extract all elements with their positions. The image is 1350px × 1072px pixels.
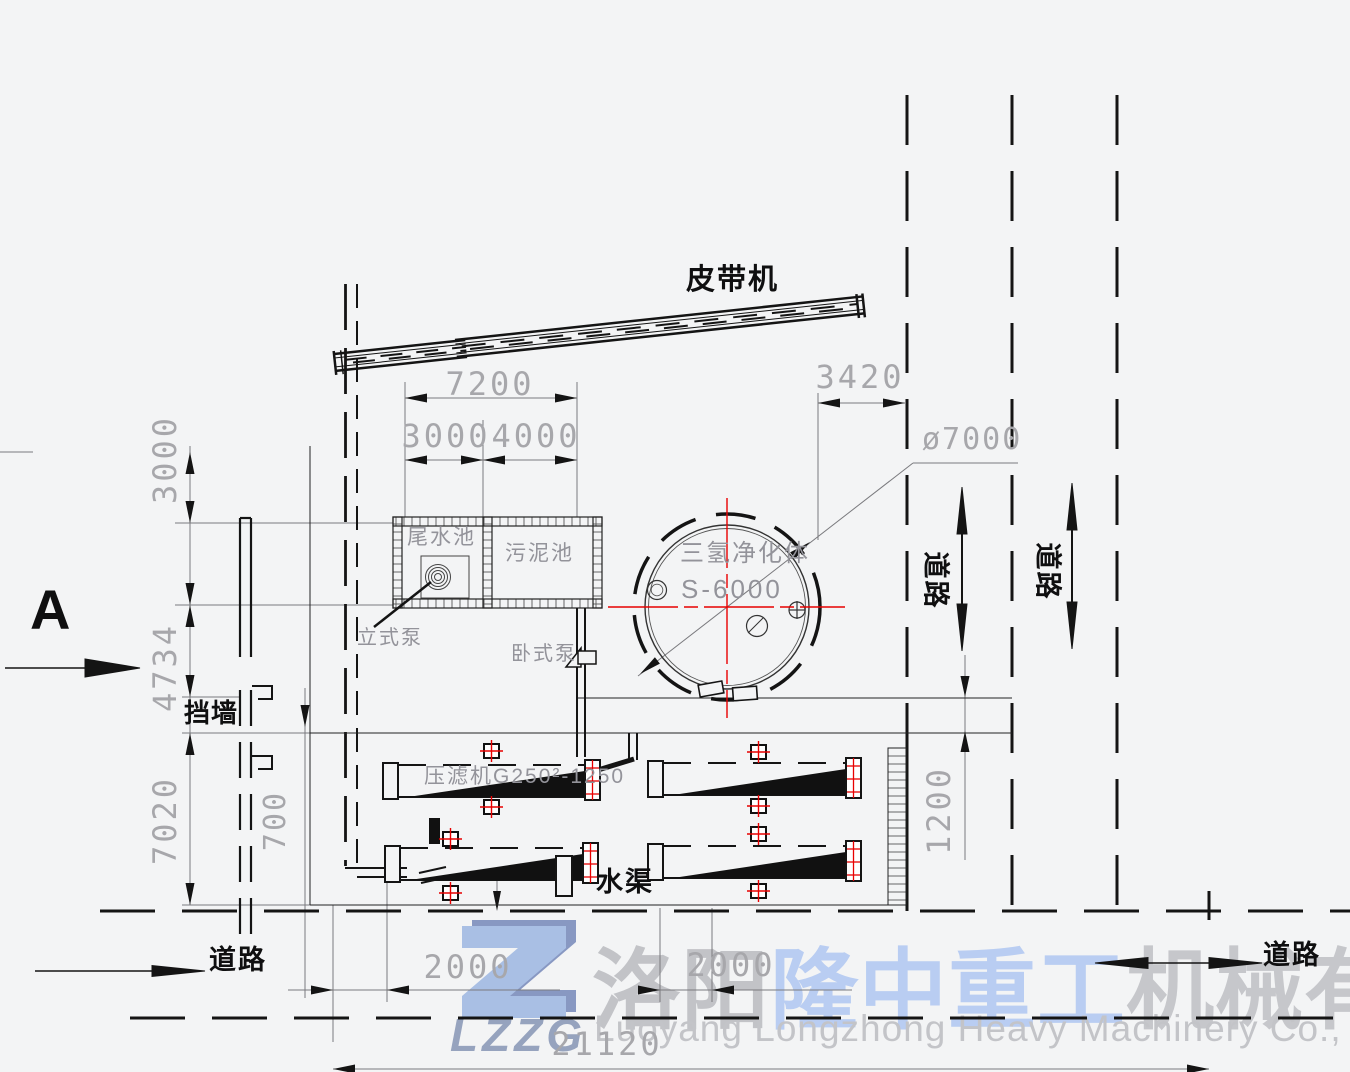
label-purifier-name: 三氢净化体 xyxy=(680,542,810,566)
cad-drawing-page: LZZG 洛阳隆中重工机械有限公司 Luoyang Longzhong Heav… xyxy=(0,0,1350,1072)
dim-2000-mid: 2000 xyxy=(671,949,791,981)
label-horizontal-pump: 卧式泵 xyxy=(511,644,577,664)
label-sludge-pool: 污泥池 xyxy=(505,543,574,564)
dim-3000-left: 3000 xyxy=(149,424,181,504)
dim-7020: 7020 xyxy=(149,785,181,865)
belt-conveyor xyxy=(334,293,865,374)
label-vertical-pump: 立式泵 xyxy=(357,628,423,648)
section-marker-a: A xyxy=(30,582,70,638)
dim-1200: 1200 xyxy=(923,775,955,855)
label-filter-press: 压滤机G250²-1250 xyxy=(424,766,625,787)
label-road-vertical-1: 道路 xyxy=(922,541,949,621)
dim-4000: 4000 xyxy=(476,420,596,452)
label-tail-water-pool: 尾水池 xyxy=(407,527,476,548)
dim-4734: 4734 xyxy=(149,632,181,712)
label-belt-conveyor: 皮带机 xyxy=(686,266,779,295)
dim-tank-diameter: ø7000 xyxy=(922,425,1022,455)
dim-21120: 21120 xyxy=(537,1028,677,1060)
section-a-arrow-icon xyxy=(85,659,140,677)
label-retaining-wall: 挡墙 xyxy=(184,700,238,726)
dim-700: 700 xyxy=(261,785,291,857)
label-purifier-model: S-6000 xyxy=(681,576,783,602)
label-road-bottom-right: 道路 xyxy=(1263,942,1321,969)
dim-3420: 3420 xyxy=(800,361,920,393)
road-direction-arrows xyxy=(5,483,1262,977)
cad-canvas xyxy=(0,0,1350,1072)
retaining-wall xyxy=(240,518,272,940)
label-water-channel: 水渠 xyxy=(596,869,654,896)
label-road-bottom-left: 道路 xyxy=(209,947,267,974)
dim-2000-left: 2000 xyxy=(408,951,528,983)
label-road-vertical-2: 道路 xyxy=(1034,532,1061,612)
purifier-tank xyxy=(608,498,845,718)
dim-7200: 7200 xyxy=(430,368,550,400)
